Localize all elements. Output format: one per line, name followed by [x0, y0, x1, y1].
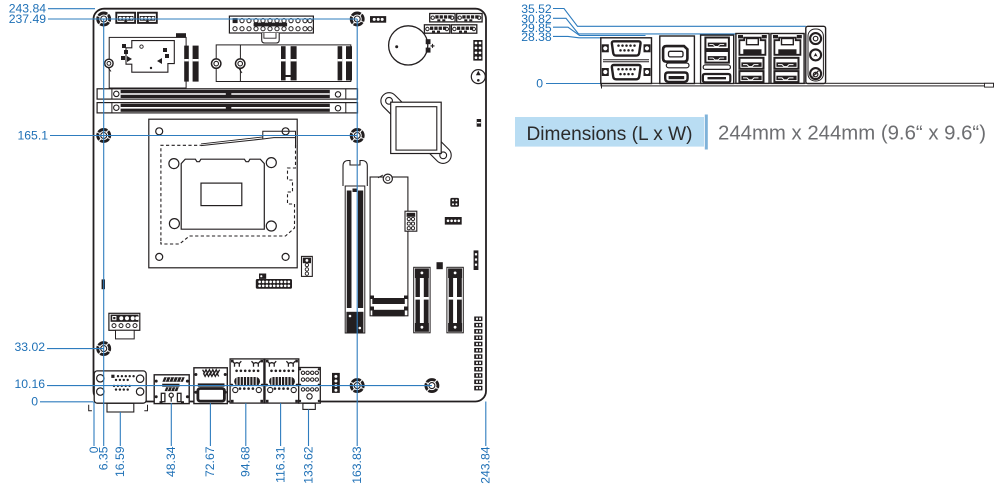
- svg-text:33.02: 33.02: [15, 340, 46, 354]
- svg-text:16.59: 16.59: [113, 446, 127, 477]
- svg-text:28.38: 28.38: [521, 30, 552, 44]
- svg-text:237.49: 237.49: [9, 12, 46, 26]
- svg-text:6.35: 6.35: [97, 446, 111, 470]
- svg-text:243.84: 243.84: [479, 446, 493, 483]
- svg-text:48.34: 48.34: [164, 446, 178, 477]
- svg-text:72.67: 72.67: [203, 446, 217, 477]
- svg-text:0: 0: [536, 76, 543, 90]
- svg-text:10.16: 10.16: [15, 377, 46, 391]
- svg-text:163.83: 163.83: [350, 446, 364, 483]
- svg-text:Dimensions (L x W): Dimensions (L x W): [527, 123, 693, 145]
- svg-text:94.68: 94.68: [239, 446, 253, 477]
- svg-text:0: 0: [31, 395, 38, 409]
- svg-text:165.1: 165.1: [18, 129, 49, 143]
- svg-text:133.62: 133.62: [301, 446, 315, 483]
- svg-text:244mm x 244mm (9.6“ x 9.6“): 244mm x 244mm (9.6“ x 9.6“): [718, 123, 986, 145]
- svg-text:116.31: 116.31: [273, 446, 287, 483]
